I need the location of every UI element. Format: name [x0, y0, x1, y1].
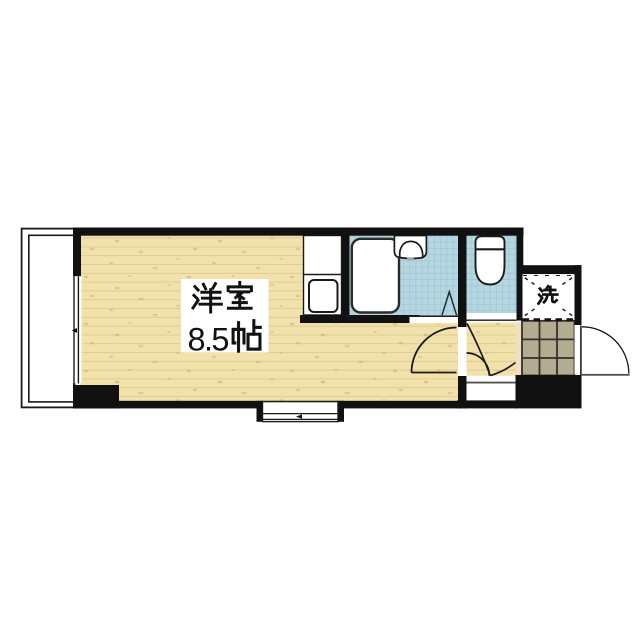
svg-text:8.5: 8.5 [188, 322, 229, 358]
